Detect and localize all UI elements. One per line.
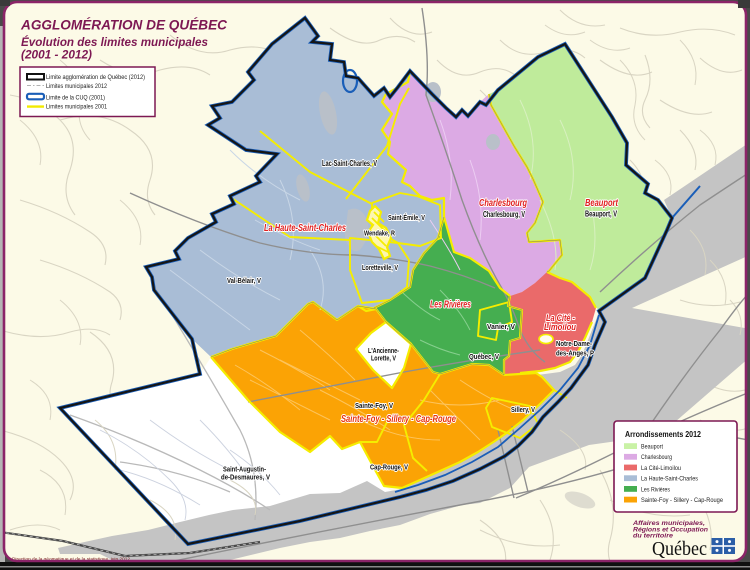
- svg-text:Sainte-Foy - Sillery - Cap-Rou: Sainte-Foy - Sillery - Cap-Rouge: [341, 414, 456, 425]
- svg-text:Arrondissements 2012: Arrondissements 2012: [625, 429, 701, 439]
- svg-text:des-Anges, P: des-Anges, P: [556, 349, 594, 358]
- svg-text:Limoilou: Limoilou: [544, 322, 576, 332]
- svg-text:Sainte-Foy - Sillery - Cap-Rou: Sainte-Foy - Sillery - Cap-Rouge: [641, 497, 723, 504]
- svg-text:Québec: Québec: [652, 538, 707, 560]
- svg-text:L'Ancienne-: L'Ancienne-: [368, 348, 400, 355]
- svg-text:Vanier, V: Vanier, V: [487, 322, 515, 331]
- svg-text:Limite agglomération de Québec: Limite agglomération de Québec (2012): [46, 74, 145, 81]
- svg-text:(2001 - 2012): (2001 - 2012): [21, 48, 92, 62]
- svg-text:Charlesbourg, V: Charlesbourg, V: [483, 210, 525, 219]
- svg-text:La Haute-Saint-Charles: La Haute-Saint-Charles: [264, 223, 346, 234]
- svg-text:Beauport, V: Beauport, V: [585, 210, 617, 219]
- svg-text:Wendake, R: Wendake, R: [364, 229, 395, 238]
- svg-text:Limites municipales 2012: Limites municipales 2012: [46, 83, 107, 90]
- svg-text:Beauport: Beauport: [585, 198, 618, 209]
- svg-text:Limites municipales 2001: Limites municipales 2001: [46, 104, 107, 111]
- svg-text:Lac-Saint-Charles, V: Lac-Saint-Charles, V: [322, 159, 377, 168]
- svg-text:Les Rivières: Les Rivières: [430, 300, 471, 311]
- svg-text:Val-Bélair, V: Val-Bélair, V: [227, 276, 261, 285]
- svg-text:Loretteville, V: Loretteville, V: [362, 263, 398, 272]
- svg-text:Sillery, V: Sillery, V: [511, 405, 535, 414]
- svg-text:Cap-Rouge, V: Cap-Rouge, V: [370, 463, 408, 472]
- svg-text:Sainte-Foy, V: Sainte-Foy, V: [355, 401, 393, 410]
- svg-text:Notre-Dame-: Notre-Dame-: [556, 339, 592, 348]
- svg-text:La Cité-Limoilou: La Cité-Limoilou: [641, 465, 681, 472]
- svg-text:Lorette, V: Lorette, V: [371, 356, 396, 363]
- svg-text:Charlesbourg: Charlesbourg: [479, 198, 527, 209]
- svg-text:AGGLOMÉRATION DE QUÉBEC: AGGLOMÉRATION DE QUÉBEC: [20, 18, 227, 33]
- svg-text:Charlesbourg: Charlesbourg: [641, 454, 672, 461]
- svg-text:Québec, V: Québec, V: [469, 352, 499, 361]
- svg-text:Les Rivières: Les Rivières: [641, 486, 670, 493]
- svg-text:Limite de la CUQ (2001): Limite de la CUQ (2001): [46, 95, 105, 102]
- svg-text:La Haute-Saint-Charles: La Haute-Saint-Charles: [641, 476, 698, 483]
- svg-text:Beauport: Beauport: [641, 444, 663, 451]
- svg-text:Saint-Émile, V: Saint-Émile, V: [388, 213, 425, 222]
- svg-text:de-Desmaures, V: de-Desmaures, V: [221, 473, 270, 482]
